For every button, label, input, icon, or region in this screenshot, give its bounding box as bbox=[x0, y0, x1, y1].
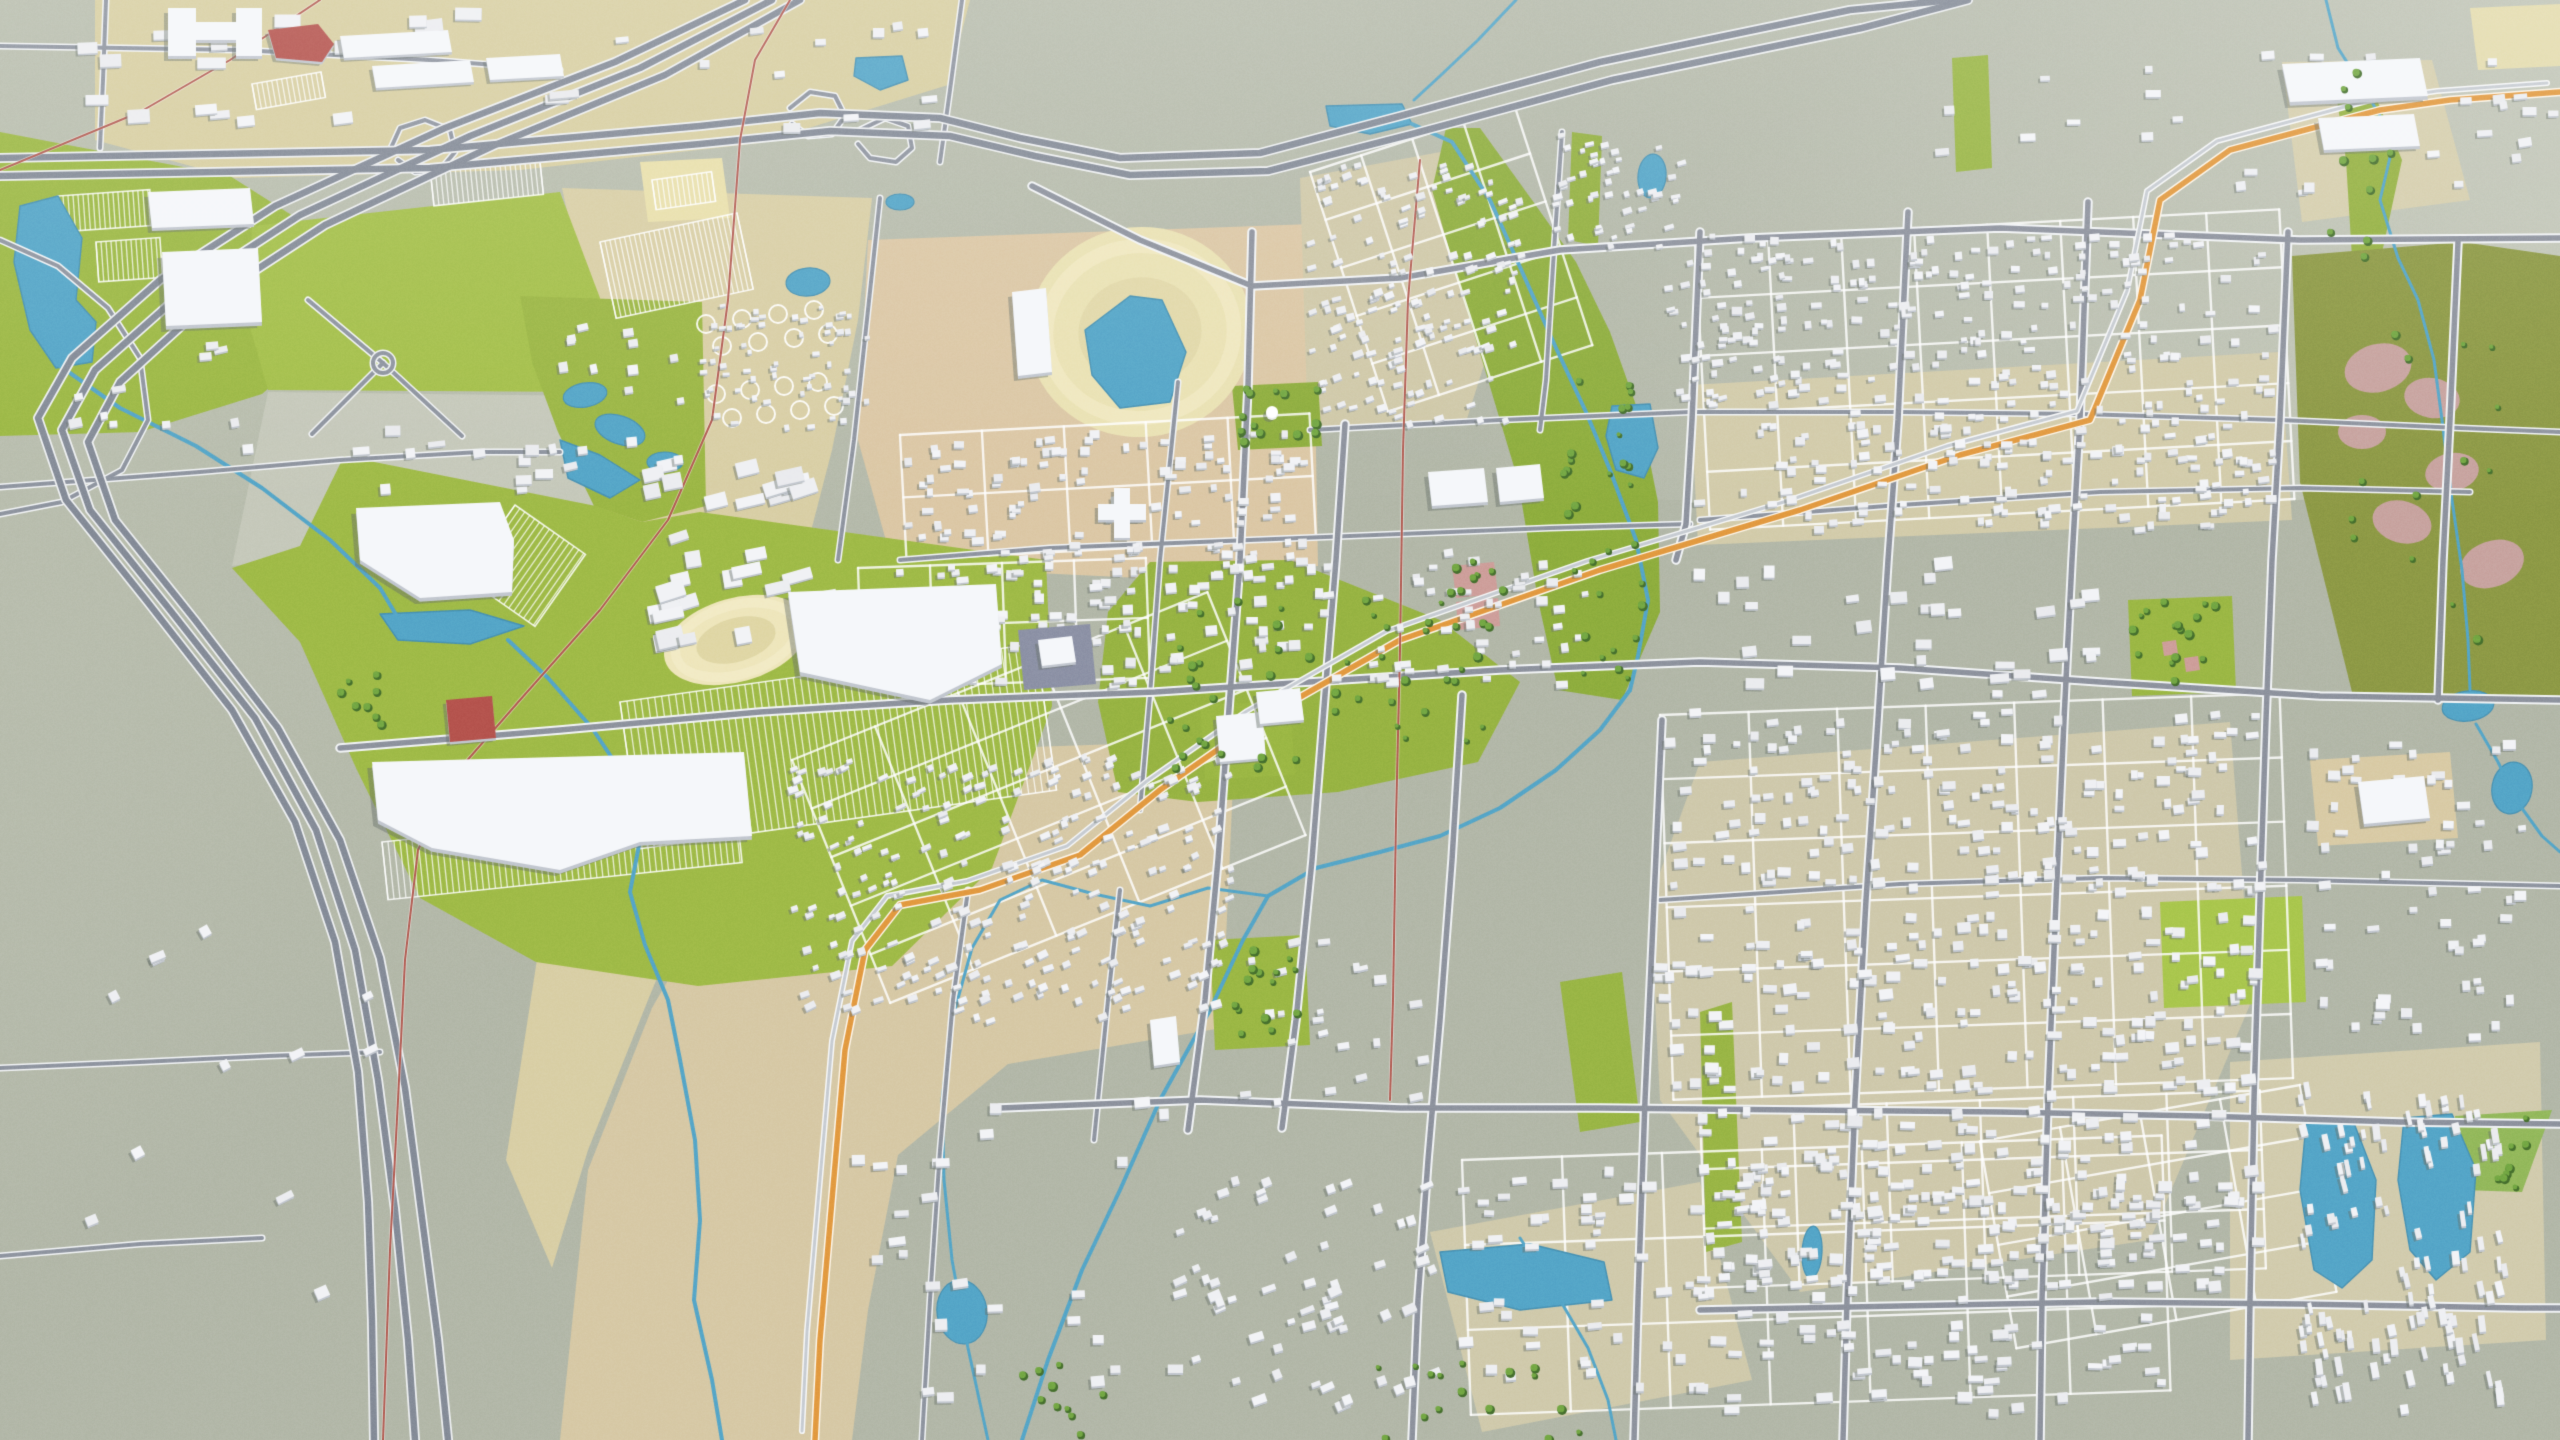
water-park-campus bbox=[530, 300, 710, 510]
racetrack-oval bbox=[1028, 227, 1252, 437]
lakeside-residential bbox=[2296, 1110, 2486, 1295]
west-shopping-mall bbox=[20, 150, 320, 400]
map-stage bbox=[0, 0, 2560, 1440]
freeway-interchange bbox=[760, 90, 1000, 200]
creek-greenbelt bbox=[1430, 120, 1670, 700]
city-map-render bbox=[0, 0, 2560, 1440]
golf-course-area bbox=[2292, 242, 2560, 702]
